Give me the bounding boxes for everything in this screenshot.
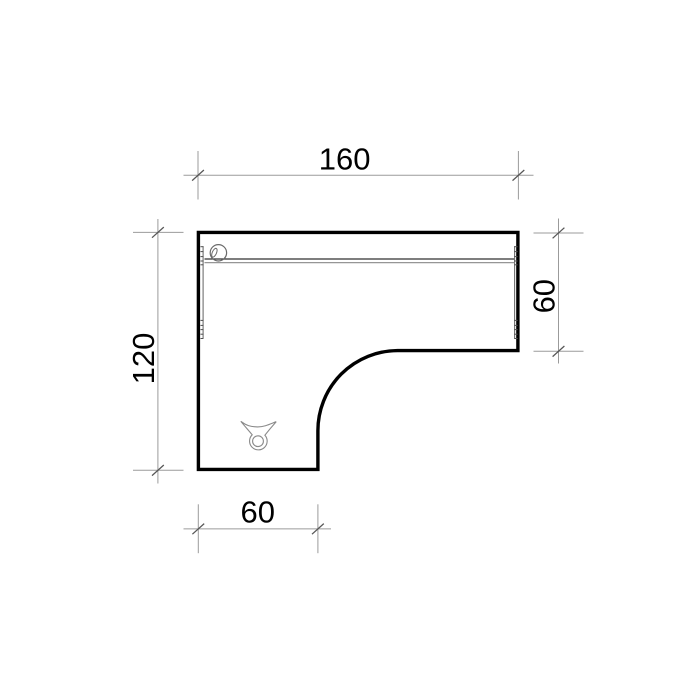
- svg-text:120: 120: [126, 333, 161, 385]
- svg-text:160: 160: [319, 141, 371, 176]
- svg-text:60: 60: [241, 494, 275, 529]
- svg-text:60: 60: [526, 279, 561, 313]
